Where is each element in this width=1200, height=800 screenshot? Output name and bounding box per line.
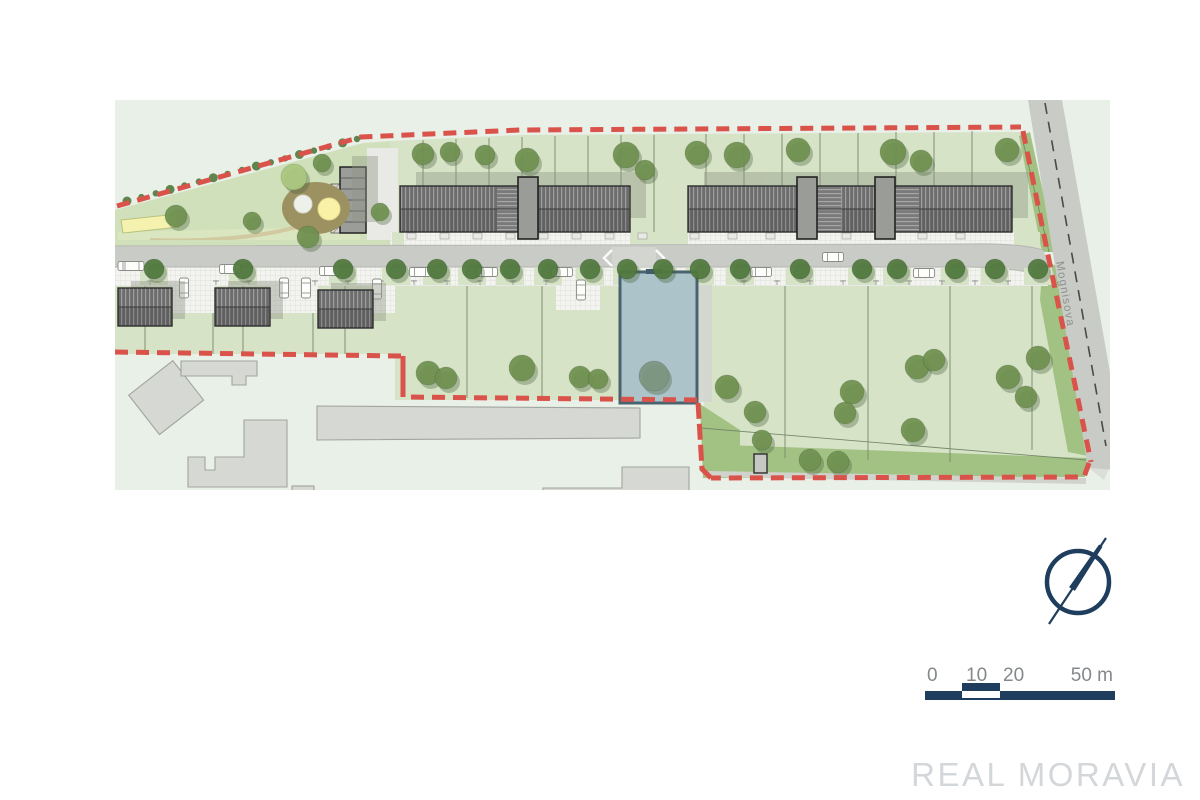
porch: [539, 233, 548, 239]
site-plan-map: Mognisova 0 10 20 50 m REAL MORAVIA: [0, 0, 1200, 800]
bush: [354, 136, 360, 142]
stair-core: [875, 177, 895, 239]
porch: [728, 233, 737, 239]
scale-label-20: 20: [1003, 665, 1024, 686]
porch: [473, 233, 482, 239]
porch: [572, 233, 581, 239]
porch: [407, 233, 416, 239]
porch: [842, 233, 851, 239]
car-icon: [751, 268, 772, 277]
scale-label-0: 0: [927, 665, 938, 686]
bus-icon: [118, 262, 144, 271]
porch: [605, 233, 614, 239]
site-plan-page: { "watermark": { "text": "REAL MORAVIA" …: [0, 0, 1200, 800]
north-arrow-icon: [1047, 538, 1109, 624]
car-icon: [823, 253, 844, 262]
play-circle-white: [294, 195, 312, 213]
stair-core: [797, 177, 817, 239]
watermark-text: REAL MORAVIA: [911, 756, 1185, 793]
sandpit: [318, 198, 340, 220]
porch: [638, 233, 647, 239]
duplex-houses: [118, 288, 373, 328]
car-icon: [577, 280, 586, 300]
car-icon: [302, 278, 311, 298]
porch: [440, 233, 449, 239]
porch: [506, 233, 515, 239]
side-lane: [699, 272, 712, 402]
stair-core: [518, 177, 538, 239]
scale-bar: 0 10 20 50 m: [925, 665, 1115, 700]
terrace-row-east: [688, 177, 1012, 239]
shed: [754, 454, 767, 473]
terrace-row-west: [400, 177, 630, 239]
car-icon: [914, 269, 935, 278]
porch: [918, 233, 927, 239]
porch: [956, 233, 965, 239]
porch: [766, 233, 775, 239]
porch: [690, 233, 699, 239]
scale-label-10: 10: [966, 665, 987, 686]
scale-label-50m: 50 m: [1071, 665, 1113, 686]
